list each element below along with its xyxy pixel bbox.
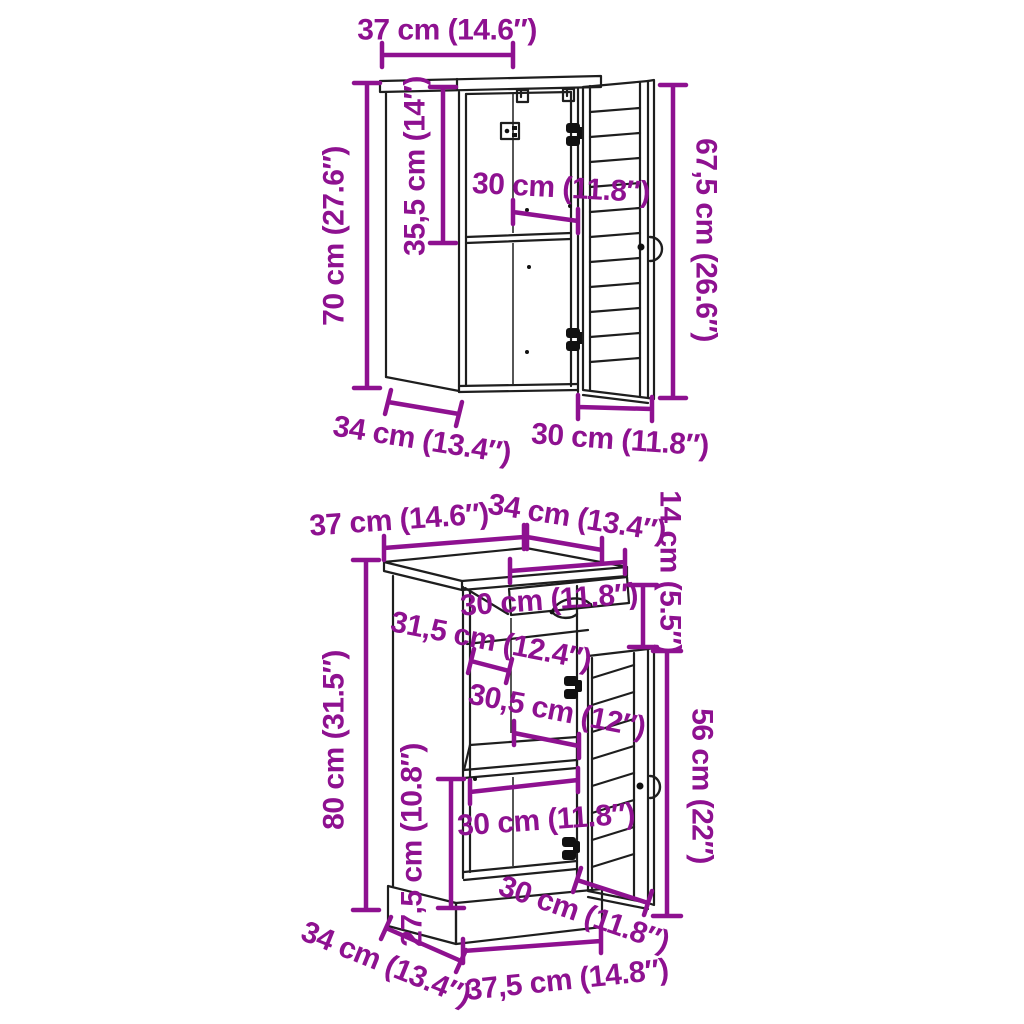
dim-floor-drawer-height: 14 cm (5.5″)	[654, 490, 687, 653]
wall-cabinet-louver-door	[583, 80, 662, 403]
dim-wall-interior-width-line	[513, 200, 578, 233]
dim-floor-door-height-line	[653, 651, 681, 916]
dim-floor-interior-height-lower: 27,5 cm (10.8″)	[396, 743, 429, 947]
dim-wall-interior-height: 35,5 cm (14″)	[399, 76, 432, 256]
dim-wall-interior-height-line	[430, 87, 456, 243]
wall-cabinet-hinge-top	[566, 123, 584, 146]
dim-wall-interior-width: 30 cm (11.8″)	[471, 167, 650, 209]
dim-floor-base-width: 37,5 cm (14.8″)	[464, 953, 670, 1007]
dim-wall-door-height: 67,5 cm (26.6″)	[690, 138, 723, 342]
dim-wall-door-height-line	[660, 85, 686, 398]
wall-cabinet-hinge-bottom	[566, 328, 584, 351]
dim-floor-top-width: 37 cm (14.6″)	[308, 497, 490, 542]
dim-floor-height-line	[353, 560, 379, 910]
dim-floor-drawer-width: 30 cm (11.8″)	[459, 577, 639, 622]
dim-floor-door-height: 56 cm (22″)	[686, 708, 719, 864]
wall-cabinet-door-knob	[638, 237, 663, 261]
dim-wall-height-line	[354, 83, 380, 388]
cabinet-dimension-drawing: 37 cm (14.6″) 35,5 cm (14″) 30 cm (11.8″…	[0, 0, 1024, 1024]
dim-floor-interior-width-upper: 30,5 cm (12″)	[466, 678, 649, 745]
dim-wall-depth: 34 cm (13.4″)	[331, 410, 514, 471]
dim-floor-height: 80 cm (31.5″)	[318, 650, 351, 830]
dim-wall-door-width: 30 cm (11.8″)	[530, 417, 710, 462]
floor-cabinet-louver-door	[588, 648, 660, 909]
wall-cabinet-latch	[501, 123, 519, 139]
dim-wall-height: 70 cm (27.6″)	[318, 146, 351, 326]
dimension-diagram: 37 cm (14.6″) 35,5 cm (14″) 30 cm (11.8″…	[0, 0, 1024, 1024]
dim-wall-top-width: 37 cm (14.6″)	[357, 14, 537, 47]
dim-wall-top-width-line	[382, 43, 513, 67]
dimension-annotations: 37 cm (14.6″) 35,5 cm (14″) 30 cm (11.8″…	[297, 14, 723, 1013]
dim-floor-interior-height-lower-line	[438, 779, 464, 908]
